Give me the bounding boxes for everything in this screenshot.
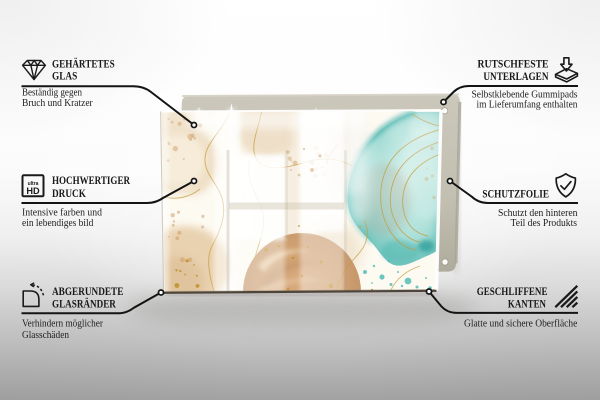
svg-text:Glasschäden: Glasschäden (22, 330, 69, 341)
svg-text:HOCHWERTIGER: HOCHWERTIGER (52, 175, 131, 187)
svg-text:KANTEN: KANTEN (508, 299, 547, 311)
svg-text:Teil des Produkts: Teil des Produkts (511, 218, 578, 229)
svg-text:Glatte und sichere Oberfläche: Glatte und sichere Oberfläche (464, 319, 578, 330)
svg-text:GLASRÄNDER: GLASRÄNDER (52, 298, 117, 311)
svg-text:DRUCK: DRUCK (52, 188, 86, 200)
svg-text:Verhindern möglicher: Verhindern möglicher (22, 319, 104, 330)
svg-text:UNTERLAGEN: UNTERLAGEN (483, 71, 549, 83)
svg-text:GESCHLIFFENE: GESCHLIFFENE (477, 286, 548, 298)
svg-text:Bruch und Kratzer: Bruch und Kratzer (22, 98, 93, 109)
svg-text:SCHUTZFOLIE: SCHUTZFOLIE (482, 188, 549, 200)
svg-text:GLAS: GLAS (52, 70, 77, 82)
svg-text:ABGERUNDETE: ABGERUNDETE (52, 286, 123, 298)
svg-text:im Lieferumfang enthalten: im Lieferumfang enthalten (477, 100, 578, 111)
svg-text:ein lebendiges bild: ein lebendiges bild (22, 218, 93, 229)
svg-text:RUTSCHFESTE: RUTSCHFESTE (478, 58, 549, 70)
svg-text:GEHÄRTETES: GEHÄRTETES (52, 57, 115, 70)
svg-text:HD: HD (26, 186, 40, 196)
